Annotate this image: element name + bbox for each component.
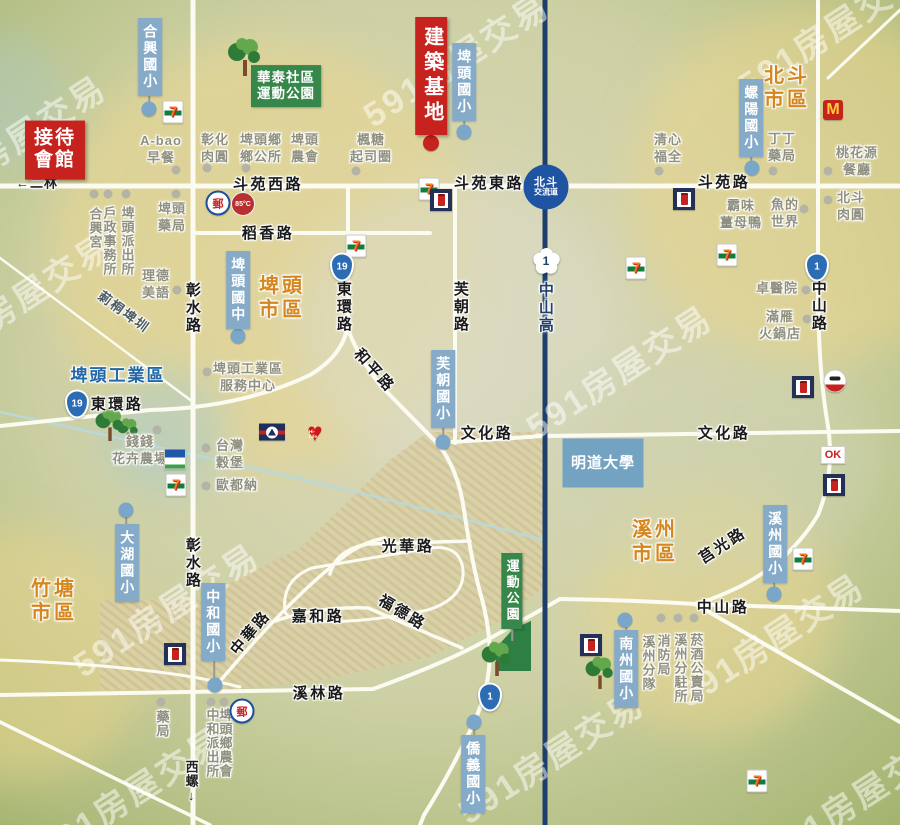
school-label: 螺陽國小: [739, 79, 763, 157]
poi-dot: [90, 190, 99, 199]
huatai-park-label: 華泰社區 運動公園: [251, 65, 321, 107]
road-label: 彰水路: [183, 537, 201, 590]
poi-label: 丁丁藥局: [768, 131, 796, 165]
seven-eleven-icon: 7: [626, 257, 647, 280]
seven-eleven-icon: 7: [793, 548, 814, 571]
poi-dot: [157, 698, 166, 707]
road-label: 芙朝路: [451, 281, 469, 334]
poi-label: 戶政事務所: [100, 206, 117, 276]
poi-label: 埤頭鄉農會: [216, 708, 233, 778]
direction-xiluo-label: 西螺↓: [183, 760, 198, 804]
poi-dot: [122, 190, 131, 199]
poi-dot: [173, 286, 182, 295]
school-label: 埤頭國中: [226, 251, 250, 329]
road-label: 文化路: [461, 425, 514, 443]
school-dot: [119, 503, 134, 518]
poi-dot: [800, 205, 809, 214]
mingdao-university-label: 明道大學: [563, 439, 644, 488]
school-label: 僑義國小: [461, 735, 485, 813]
gas-station-icon: [430, 189, 452, 211]
road-label: 中山路: [697, 599, 750, 617]
reception-line1: 接待: [34, 128, 76, 150]
school-dot: [231, 329, 246, 344]
district-label: 竹塘市區: [31, 577, 77, 625]
construction-site-dot: [423, 135, 439, 151]
poi-dot: [220, 698, 229, 707]
poi-label: 北斗肉圓: [837, 190, 865, 224]
poi-label: 卓醫院: [756, 281, 798, 298]
poi-label: 藥局: [153, 710, 170, 738]
seven-eleven-icon: 7: [747, 770, 768, 793]
school-label: 埤頭國小: [452, 43, 476, 121]
poi-label: 彰化肉圓: [201, 132, 229, 166]
gas-station-icon: [823, 474, 845, 496]
poi-dot: [655, 167, 664, 176]
freeway-name-label: 中山高: [536, 282, 554, 335]
industrial-zone-label: 埤頭工業區: [71, 366, 166, 386]
85c-cafe-icon: 85°C: [231, 192, 255, 216]
road-label: 彰水路: [183, 282, 201, 335]
construction-site-text: 建築基地: [421, 26, 443, 126]
freeway-name-text: 中山高: [537, 282, 554, 335]
poi-label: 埤頭派出所: [118, 206, 135, 276]
school-dot: [767, 587, 782, 602]
reception-hall-label: 接待 會館: [25, 121, 85, 180]
poi-label: 埤頭藥局: [158, 201, 186, 235]
school-dot: [208, 678, 223, 693]
school-label: 大湖國小: [115, 524, 139, 602]
school-label: 溪州國小: [763, 505, 787, 583]
poi-label: 錢錢花卉農場: [112, 434, 168, 468]
poi-dot: [657, 614, 666, 623]
industrial-zone-text: 埤頭工業區: [71, 366, 166, 385]
huatai-line1: 華泰社區: [257, 70, 315, 86]
road-label: 溪林路: [293, 685, 346, 703]
school-dot: [436, 435, 451, 450]
interchange-line2: 交流道: [534, 189, 558, 198]
poi-label: 菸酒公賣局: [687, 633, 704, 703]
university-text: 明道大學: [571, 454, 635, 472]
district-label: 埤頭市區: [259, 274, 305, 322]
post-office-icon: 郵: [206, 191, 231, 216]
beidou-interchange-badge: 北斗 交流道: [524, 165, 569, 210]
sports-park-label: 運動公園: [501, 553, 522, 629]
road-label: 中山路: [809, 280, 827, 333]
post-office-icon: 郵: [230, 699, 255, 724]
school-label: 中和國小: [201, 583, 225, 661]
poi-dot: [202, 444, 211, 453]
district-label: 北斗市區: [764, 64, 810, 112]
school-dot: [142, 102, 157, 117]
direction-xiluo-text: 西螺↓: [184, 760, 199, 804]
road-label: 東環路: [334, 281, 352, 334]
construction-site-label: 建築基地: [415, 17, 447, 135]
road-label: 斗苑東路: [454, 175, 524, 193]
school-dot: [618, 613, 633, 628]
road-label: 斗苑路: [698, 174, 751, 192]
poi-dot: [824, 196, 833, 205]
sports-park-text: 運動公園: [505, 559, 520, 623]
poi-label: 埤頭鄉鄉公所: [240, 132, 282, 166]
seven-eleven-icon: 7: [166, 474, 187, 497]
kfc-icon: [824, 370, 847, 393]
poi-dot: [104, 190, 113, 199]
reception-line2: 會館: [34, 150, 76, 172]
seven-eleven-icon: 7: [717, 244, 738, 267]
poi-dot: [769, 167, 778, 176]
poi-label: 楓糖起司圈: [350, 132, 392, 166]
familymart-icon: [164, 449, 186, 470]
bank-logo-icon: [259, 424, 285, 441]
gas-station-icon: [673, 188, 695, 210]
road-label: 光華路: [382, 538, 435, 556]
poi-dot: [352, 167, 361, 176]
poi-label: 魚的世界: [771, 197, 799, 231]
poi-label: 霸味薑母鴨: [720, 198, 762, 232]
road-label: 文化路: [698, 425, 751, 443]
poi-label: A-bao早餐: [140, 133, 182, 167]
huatai-line2: 運動公園: [257, 86, 315, 102]
poi-label: 台灣穀堡: [216, 438, 244, 472]
district-label: 溪州市區: [632, 518, 678, 566]
school-dot: [457, 125, 472, 140]
poi-dot: [202, 482, 211, 491]
national-highway-shield: 1: [533, 248, 559, 274]
poi-label: 理德美語: [142, 268, 170, 302]
poi-dot: [207, 698, 216, 707]
ok-mart-icon: OK: [821, 446, 846, 464]
school-label: 芙朝國小: [431, 350, 455, 428]
school-label: 南州國小: [614, 630, 638, 708]
poi-dot: [203, 368, 212, 377]
poi-label: 消防局: [654, 634, 671, 676]
poi-label: 埤頭農會: [291, 132, 319, 166]
poi-label: 滿雁火鍋店: [759, 309, 801, 343]
road-label: 嘉和路: [292, 608, 345, 626]
seven-eleven-icon: 7: [163, 101, 184, 124]
school-dot: [467, 715, 482, 730]
mcdonalds-icon: M: [823, 100, 843, 120]
poi-label: 歐都納: [216, 478, 258, 495]
poi-label: 清心福全: [654, 132, 682, 166]
poi-label: 埤頭工業區服務中心: [213, 361, 283, 395]
gas-station-icon: [580, 634, 602, 656]
road-label: 東環路: [91, 396, 144, 414]
gas-station-icon: [792, 376, 814, 398]
poi-dot: [674, 614, 683, 623]
school-label: 合興國小: [138, 18, 162, 96]
real-estate-location-map: 接待 會館 建築基地 華泰社區 運動公園 運動公園 明道大學 北斗 交流道 中山…: [0, 0, 900, 825]
poi-label: 溪州分駐所: [671, 633, 688, 703]
poi-dot: [824, 167, 833, 176]
gas-station-icon: [164, 643, 186, 665]
poi-label: 桃花源餐廳: [836, 145, 878, 179]
road-label: 稻香路: [242, 225, 295, 243]
hilife-icon: ♥Hi-Life: [303, 420, 327, 444]
poi-dot: [172, 190, 181, 199]
